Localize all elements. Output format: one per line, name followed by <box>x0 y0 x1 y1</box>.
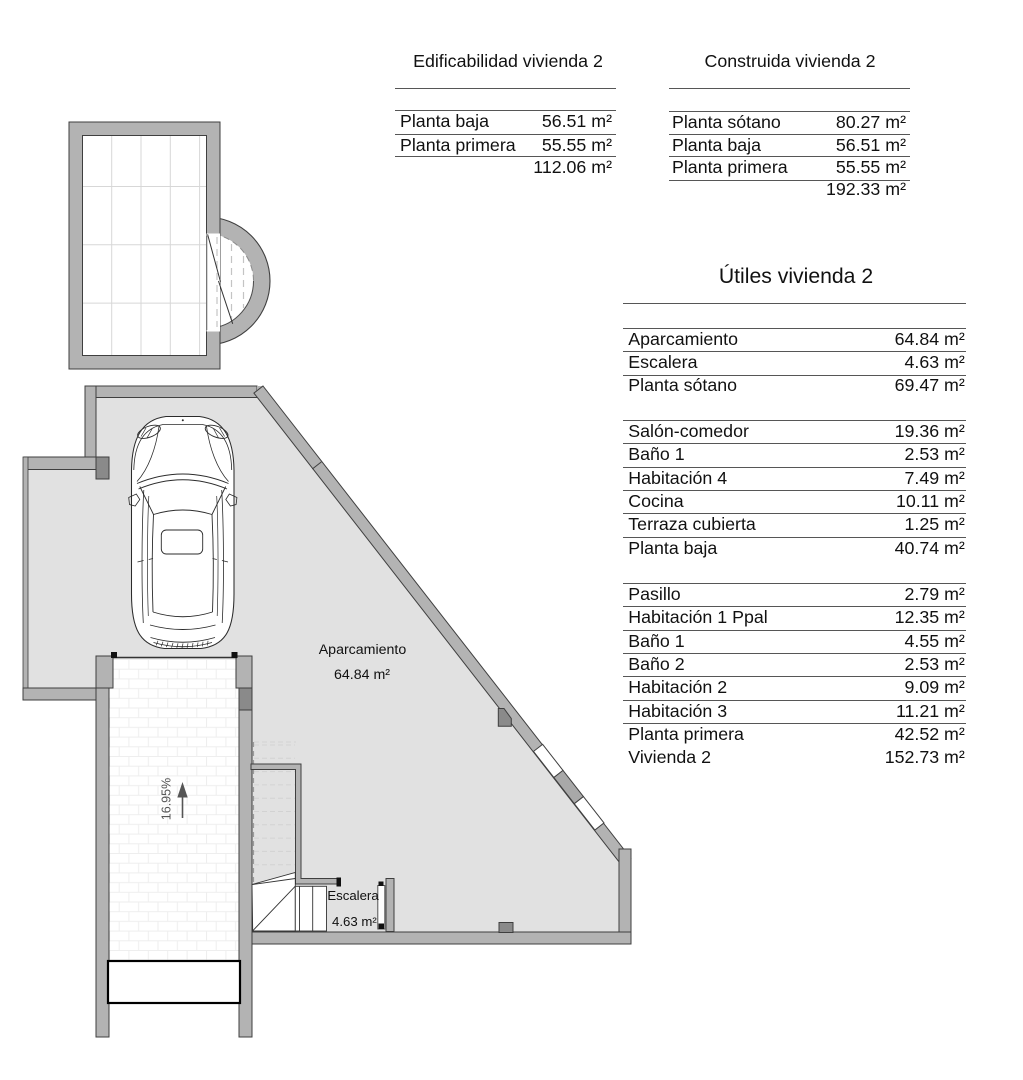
svg-text:64.84 m²: 64.84 m² <box>334 667 390 683</box>
svg-text:Escalera: Escalera <box>327 888 379 903</box>
svg-text:4.63 m²: 4.63 m² <box>332 914 377 929</box>
svg-text:16.95%: 16.95% <box>160 778 174 820</box>
svg-text:Aparcamiento: Aparcamiento <box>319 642 407 658</box>
